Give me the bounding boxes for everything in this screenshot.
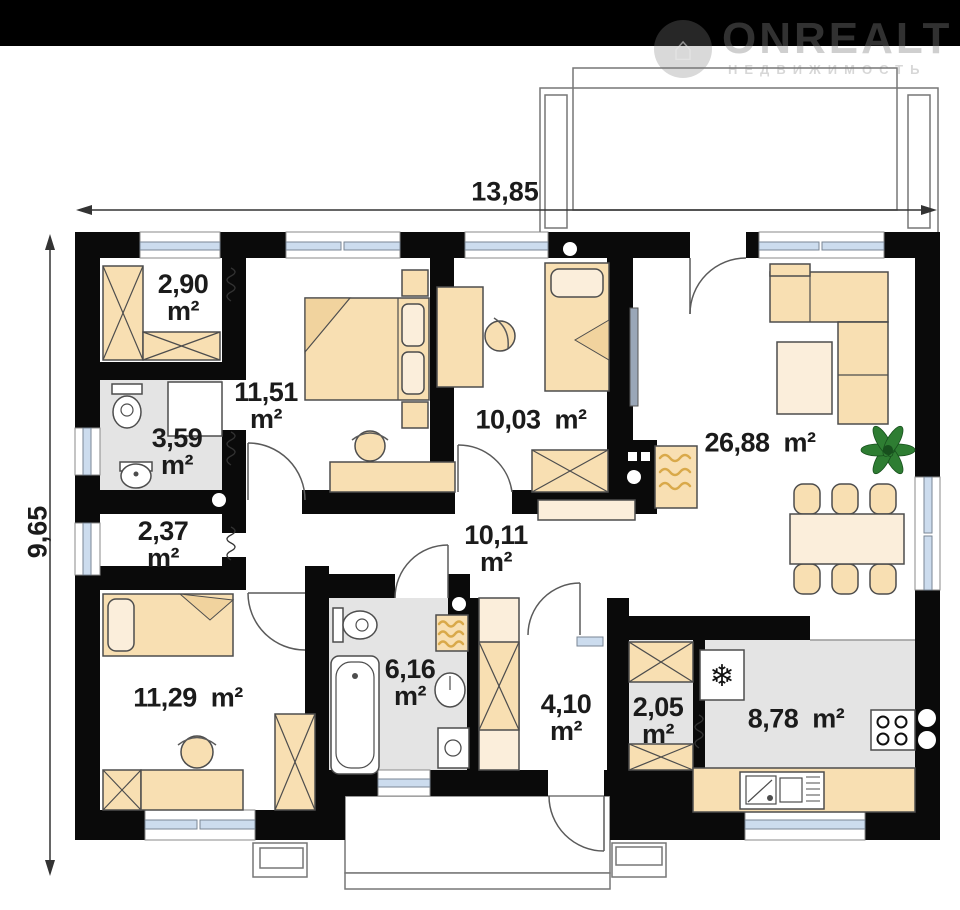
height-dimension: 9,65 (23, 506, 54, 559)
desk-bedroom-2 (437, 287, 515, 387)
kitchen-counter (693, 768, 915, 812)
radiator-bathroom (436, 615, 468, 651)
room-label-bedroom-2: 10,03 m² (475, 407, 586, 434)
room-label-pantry: 2,05 m² (633, 694, 684, 748)
snowflake-icon: ❄ (709, 659, 734, 694)
double-bed (305, 270, 429, 428)
terrace-top (540, 68, 938, 233)
room-label-wardrobe: 2,90 m² (158, 271, 209, 325)
single-bed-bottom (103, 594, 233, 656)
dresser (532, 450, 608, 492)
sink-round (435, 673, 465, 707)
floor-plan-drawing: ❄ (0, 0, 960, 910)
single-bed-top (545, 263, 609, 391)
room-label-kitchen: 8,78 m² (748, 706, 845, 733)
washing-machine (438, 728, 469, 768)
hall-closet (479, 598, 519, 770)
room-label-bathroom-top: 3,59 m² (152, 425, 203, 479)
floor-plan-page: ⌂ ONREALT НЕДВИЖИМОСТЬ (0, 0, 960, 910)
hall-bench (538, 500, 635, 520)
toilet-top (112, 384, 142, 428)
bathtub (331, 656, 379, 774)
mirror (630, 308, 638, 406)
plant (861, 424, 915, 477)
room-label-bedroom-1: 11,51 m² (234, 379, 298, 433)
desk-bedroom-3 (141, 736, 243, 810)
sink-top (120, 462, 152, 488)
fridge: ❄ (700, 650, 744, 700)
coffee-table (777, 342, 832, 414)
room-label-entry-hall: 4,10 m² (541, 691, 592, 745)
room-label-living-room: 26,88 m² (704, 430, 815, 457)
width-dimension: 13,85 (471, 177, 539, 208)
room-label-bathroom-bottom: 6,16 m² (385, 656, 436, 710)
toilet-bottom (333, 608, 377, 642)
room-label-closet: 2,37 m² (138, 518, 189, 572)
room-label-bedroom-3: 11,29 m² (133, 685, 243, 712)
dining-set (790, 484, 904, 594)
room-label-hallway: 10,11 m² (464, 522, 528, 576)
